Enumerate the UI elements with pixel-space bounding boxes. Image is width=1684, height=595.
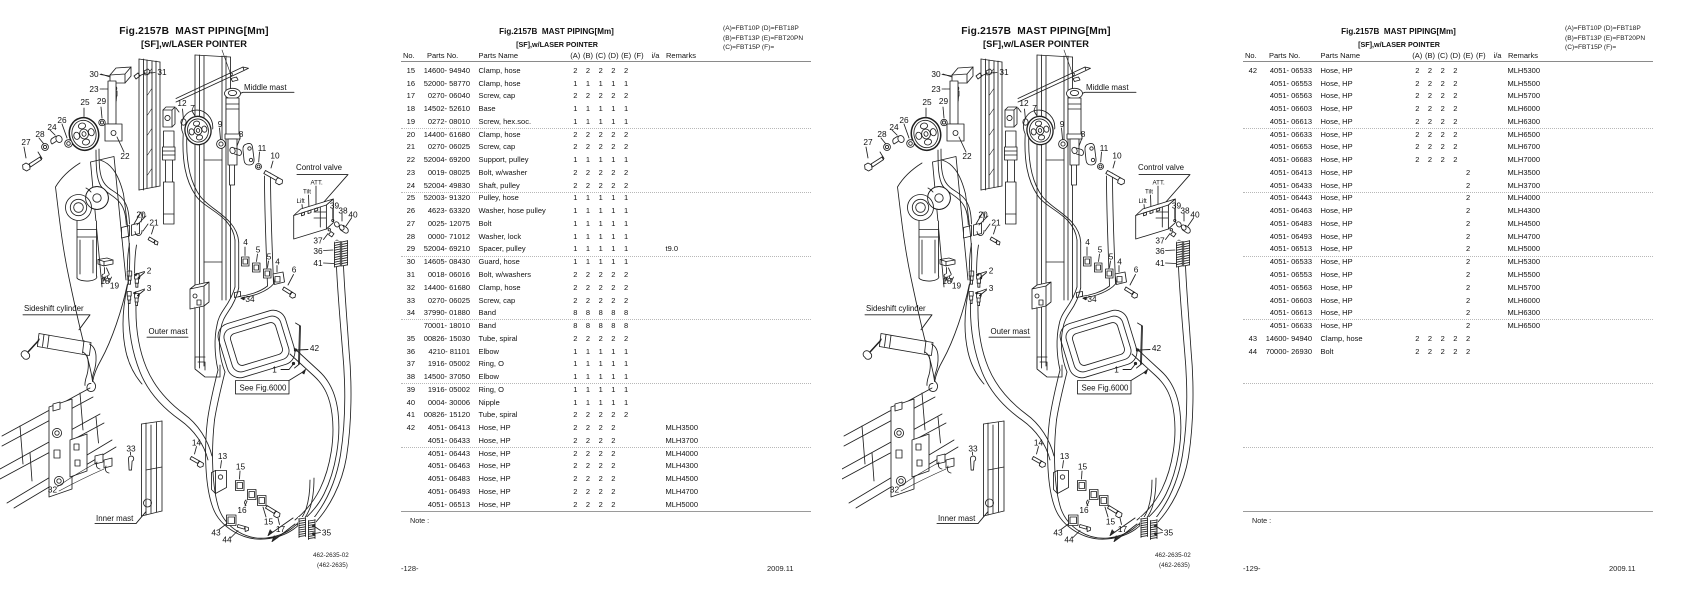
svg-text:Outer mast: Outer mast [149, 327, 189, 336]
svg-text:6: 6 [292, 264, 297, 274]
svg-text:35: 35 [322, 527, 332, 537]
svg-text:44: 44 [222, 534, 232, 544]
svg-text:24: 24 [47, 122, 57, 132]
svg-text:7: 7 [190, 103, 195, 113]
svg-text:33: 33 [126, 443, 136, 453]
svg-text:32: 32 [48, 484, 58, 494]
svg-text:Sideshift cylinder: Sideshift cylinder [24, 304, 84, 313]
svg-text:19: 19 [110, 280, 120, 290]
svg-text:42: 42 [310, 343, 320, 353]
svg-text:9: 9 [218, 119, 223, 129]
svg-text:4: 4 [243, 237, 248, 247]
svg-text:34: 34 [245, 294, 255, 304]
svg-text:17: 17 [276, 524, 286, 534]
svg-text:Inner mast: Inner mast [96, 514, 134, 523]
svg-text:10: 10 [270, 150, 280, 160]
svg-text:25: 25 [80, 97, 90, 107]
svg-text:40: 40 [348, 209, 358, 219]
svg-text:21: 21 [149, 217, 159, 227]
svg-text:ATT.: ATT. [311, 180, 324, 187]
svg-text:2: 2 [147, 265, 152, 275]
svg-text:Lift: Lift [297, 198, 306, 205]
svg-text:11: 11 [258, 143, 267, 153]
svg-text:15: 15 [236, 461, 246, 471]
svg-text:13: 13 [218, 451, 228, 461]
svg-text:37: 37 [313, 235, 323, 245]
svg-text:18: 18 [100, 276, 110, 286]
svg-text:23: 23 [89, 84, 99, 94]
svg-text:14: 14 [192, 437, 202, 447]
svg-text:31: 31 [157, 67, 167, 77]
svg-text:12: 12 [177, 98, 187, 108]
svg-text:30: 30 [89, 69, 99, 79]
svg-text:26: 26 [57, 115, 67, 125]
svg-text:28: 28 [35, 129, 45, 139]
svg-text:Tilt: Tilt [303, 189, 311, 196]
svg-text:15: 15 [264, 516, 274, 526]
svg-text:43: 43 [211, 527, 221, 537]
svg-text:41: 41 [313, 258, 323, 268]
svg-text:8: 8 [239, 129, 244, 139]
svg-text:Middle mast: Middle mast [244, 83, 287, 92]
svg-text:38: 38 [338, 205, 348, 215]
svg-text:5: 5 [267, 251, 272, 261]
svg-text:36: 36 [313, 246, 323, 256]
svg-text:4: 4 [275, 256, 280, 266]
svg-text:5: 5 [256, 244, 261, 254]
svg-text:16: 16 [237, 505, 247, 515]
svg-text:3: 3 [147, 283, 152, 293]
svg-text:See Fig.6000: See Fig.6000 [240, 384, 288, 393]
svg-text:27: 27 [21, 137, 31, 147]
svg-text:22: 22 [120, 151, 130, 161]
svg-text:Control valve: Control valve [296, 163, 343, 172]
svg-text:1: 1 [272, 364, 277, 374]
svg-text:29: 29 [97, 96, 107, 106]
